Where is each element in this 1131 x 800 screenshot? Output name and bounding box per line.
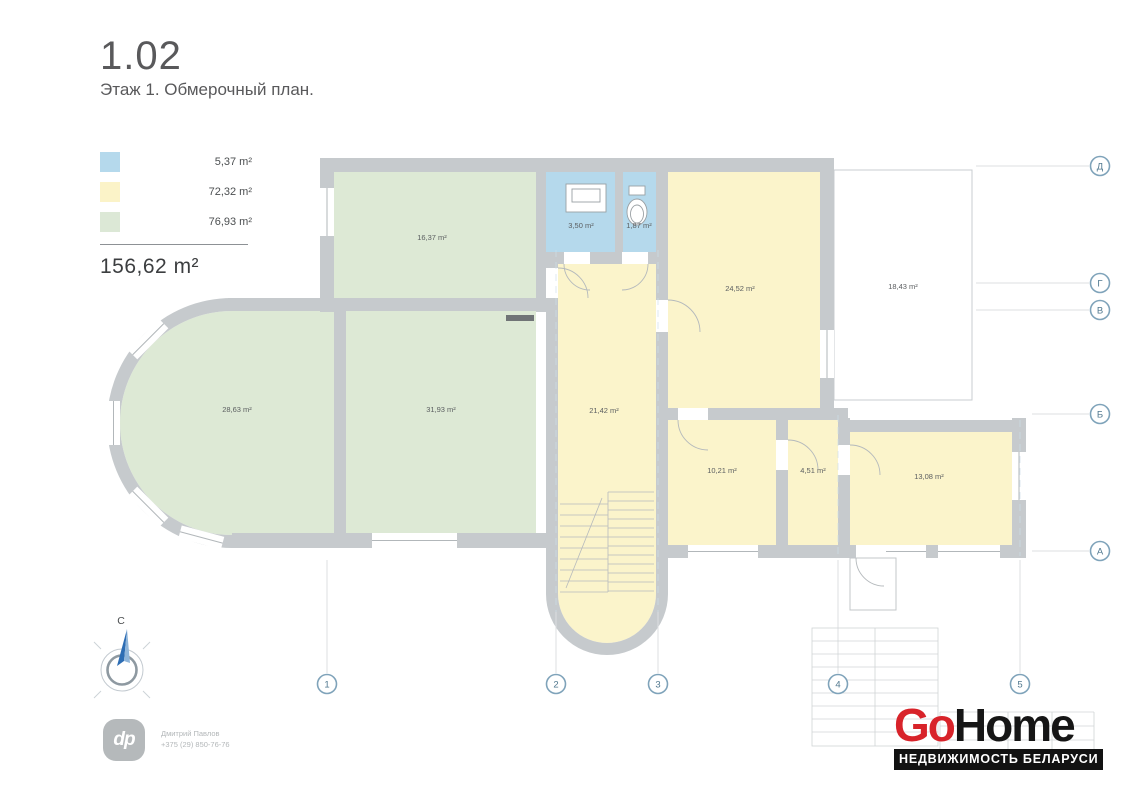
svg-text:Б: Б (1097, 410, 1103, 421)
svg-text:4: 4 (835, 680, 840, 691)
room-area-label: 31,93 m² (426, 405, 456, 414)
axis-row-markers: Д Г В Б А (1091, 157, 1110, 561)
brand-logo: GoHome (894, 704, 1088, 748)
axis-marker-col-5: 5 (1011, 675, 1030, 694)
window-icon (372, 533, 457, 548)
axis-marker-row-5: А (1091, 542, 1110, 561)
window-icon (938, 545, 1000, 558)
room-right (850, 432, 1012, 545)
compass-north-label: С (117, 615, 125, 627)
room-area-label: 18,43 m² (888, 282, 918, 291)
window-icon (820, 330, 834, 378)
axis-marker-row-3: В (1091, 301, 1110, 320)
room-small-2 (788, 420, 838, 545)
svg-text:В: В (1097, 306, 1103, 317)
svg-text:2: 2 (553, 680, 558, 691)
room-area-label: 16,37 m² (417, 233, 447, 242)
axis-marker-col-4: 4 (829, 675, 848, 694)
room-round-bay (120, 311, 334, 535)
svg-text:5: 5 (1017, 680, 1022, 691)
window-icon (688, 545, 758, 558)
agent-name: Дмитрий Павлов (161, 728, 230, 739)
brand-tagline: НЕДВИЖИМОСТЬ БЕЛАРУСИ (894, 749, 1103, 770)
svg-text:Д: Д (1097, 162, 1104, 173)
room-area-label: 10,21 m² (707, 466, 737, 475)
svg-text:1: 1 (324, 680, 329, 691)
axis-marker-col-2: 2 (547, 675, 566, 694)
window-icon (1012, 452, 1026, 500)
agent-phone: +375 (29) 850-76-76 (161, 739, 230, 750)
room-center (346, 311, 536, 533)
brand-go: Go (894, 699, 954, 751)
agent-block: dp Дмитрий Павлов +375 (29) 850-76-76 (103, 719, 230, 761)
axis-marker-row-4: Б (1091, 405, 1110, 424)
window-icon (107, 401, 120, 445)
floor-plan-page: 1.02 Этаж 1. Обмерочный план. 5,37 m² 72… (0, 0, 1131, 800)
hall-stairs (558, 264, 656, 594)
door-leaf (506, 315, 534, 321)
room-area-label: 28,63 m² (222, 405, 252, 414)
room-area-label: 13,08 m² (914, 472, 944, 481)
agent-contact: Дмитрий Павлов +375 (29) 850-76-76 (161, 728, 230, 751)
brand-home: Home (954, 699, 1074, 751)
svg-text:А: А (1097, 547, 1104, 558)
room-area-label: 24,52 m² (725, 284, 755, 293)
svg-text:3: 3 (655, 680, 660, 691)
svg-text:Г: Г (1097, 279, 1102, 290)
toilet-icon (627, 186, 647, 225)
room-area-label: 4,51 m² (800, 466, 826, 475)
room-area-label: 3,50 m² (568, 221, 594, 230)
agent-logo: dp (103, 719, 145, 761)
room-area-label: 21,42 m² (589, 406, 619, 415)
room-area-label: 1,87 m² (626, 221, 652, 230)
axis-marker-row-1: Д (1091, 157, 1110, 176)
axis-marker-col-3: 3 (649, 675, 668, 694)
axis-marker-col-1: 1 (318, 675, 337, 694)
compass: С (94, 615, 150, 698)
window-icon (320, 188, 334, 236)
sink-icon (566, 184, 606, 212)
floor-plan-drawing: Д Г В Б А 1 (0, 0, 1131, 800)
axis-marker-row-2: Г (1091, 274, 1110, 293)
brand-block: GoHome НЕДВИЖИМОСТЬ БЕЛАРУСИ (894, 704, 1088, 770)
axis-col-markers: 1 2 3 4 5 (318, 675, 1030, 694)
